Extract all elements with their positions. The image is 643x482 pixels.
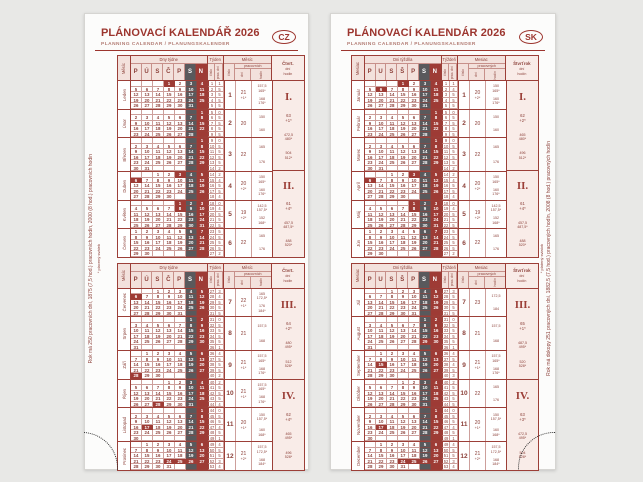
day-cell: 29 <box>376 373 387 379</box>
quarter-hours-value: 512* <box>519 156 526 160</box>
hours-value: 165 <box>259 145 265 149</box>
country-badge-cz: CZ <box>272 30 296 44</box>
day-cell: 30 <box>409 402 420 408</box>
week-number: 31 <box>208 311 216 317</box>
month-row: Březen1902345678105910111213141511516171… <box>118 138 272 172</box>
day-cell <box>398 251 409 257</box>
day-cell <box>398 373 409 379</box>
vertical-label: Apríl <box>356 182 361 191</box>
hours-value: 157,5* <box>257 417 267 421</box>
quarter-workdays-star: +4* <box>285 206 291 211</box>
day-cell <box>420 345 431 351</box>
days-sublabel: dní <box>235 69 251 80</box>
month-row: Október123440256789101141512131415161718… <box>352 380 506 409</box>
vertical-label: hodín <box>493 71 497 80</box>
week-number: 27 <box>442 251 450 257</box>
day-letter: Ú <box>142 64 153 80</box>
quarters-column: III.64+2*480495*512528*IV.62+4*465495*49… <box>272 289 304 470</box>
day-cell <box>409 464 420 470</box>
hours-pair: 142,5157,5* <box>491 204 501 213</box>
day-cell <box>376 436 387 442</box>
quarter-numeral: IV. <box>516 390 530 402</box>
day-letter: S <box>386 272 397 288</box>
day-cell: 31 <box>142 166 153 172</box>
week-row: 28293031534 <box>131 464 224 470</box>
day-cell <box>186 251 197 257</box>
weeks-grid: 1234563647891011121337514151617181920385… <box>131 351 224 379</box>
month-hours: 157,5172,5*168184* <box>252 442 272 470</box>
day-cell: 29 <box>387 194 398 200</box>
month-workdays-value: 22 <box>475 152 481 158</box>
vertical-label: Október <box>356 386 361 401</box>
day-cell <box>197 166 208 172</box>
day-letter: S <box>419 64 430 80</box>
hours-value: 150 <box>259 115 265 119</box>
hours-value: 168* <box>258 221 265 225</box>
month-name: Duben <box>118 172 131 200</box>
day-cell <box>431 311 442 317</box>
month-workdays: 21+1* <box>236 380 252 408</box>
month-number-sublabel: číslo <box>224 272 235 288</box>
quarter-column-header: Čtvrt.dníhodin <box>272 56 304 80</box>
weeks-grid: 1902345678105910111213141511516171819202… <box>365 138 458 171</box>
day-cell: 29 <box>131 251 142 257</box>
day-cell <box>398 166 409 172</box>
hours-pair: 150 <box>493 115 499 119</box>
day-cell <box>197 402 208 408</box>
week-sublabel: prac. dní <box>449 64 457 80</box>
vertical-label: December <box>356 446 361 466</box>
month-workdays-star: +2* <box>475 457 481 461</box>
hours-pair: 160168* <box>492 428 499 437</box>
perforation-arc <box>518 432 556 470</box>
quarter-numeral: II. <box>283 180 294 192</box>
hours-pair: 168 <box>259 339 265 343</box>
month-row: Červenec12345273678910111228413141516171… <box>118 289 272 318</box>
day-letter: S <box>419 272 430 288</box>
month-hours: 150165*160176* <box>486 81 506 109</box>
hours-pair: 157,5165* <box>492 354 501 363</box>
page-subtitle: PLANNING CALENDAR / PLANUNGSKALENDER <box>347 42 506 47</box>
week-number: 27 <box>208 251 216 257</box>
quarter-cell: IV.62+4*465495*496528* <box>273 380 304 470</box>
quarter-label-text: Čtvrt. <box>282 61 293 66</box>
hours-pair: 160176* <box>258 188 265 197</box>
day-cell <box>164 166 175 172</box>
week-row: 2930272 <box>365 251 458 257</box>
week-workdays: 1 <box>216 436 224 442</box>
quarter-hours-value: 480* <box>519 137 526 141</box>
day-cell: 27 <box>131 311 142 317</box>
week-workdays: 2 <box>216 251 224 257</box>
quarter-hours: 512528* <box>285 360 292 369</box>
quarter-hours-value: 520* <box>519 243 526 247</box>
month-hours: 157,5168 <box>252 317 272 350</box>
page-title: PLÁNOVACÍ KALENDÁR 2026 <box>347 28 506 40</box>
weeks-grid: 1231034567893251011121314151633517181920… <box>131 317 224 350</box>
month-name: Srpen <box>118 317 131 350</box>
days-sublabel: dní <box>469 277 485 288</box>
quarters-column: I.63+1*472,5480*504512*II.61+4*457,5487,… <box>272 81 304 257</box>
month-hours: 157,5165*168176* <box>252 380 272 408</box>
working-sublabels: pracovnýchdníhodín <box>469 64 505 80</box>
week-row: 2930272 <box>131 251 224 257</box>
hours-value: 165 <box>493 145 499 149</box>
quarter-hours-value: 495* <box>518 345 527 349</box>
day-cell: 29 <box>164 402 175 408</box>
months-column: Január1234115678910112412131415161718351… <box>352 81 506 257</box>
month-number: 1 <box>458 81 470 109</box>
day-cell: 26 <box>131 402 142 408</box>
hours-value: 176* <box>492 192 499 196</box>
day-cell <box>387 251 398 257</box>
day-cell: 31 <box>175 311 186 317</box>
week-row: 23242526272895 <box>365 132 458 138</box>
quarter-hours: 472,5480* <box>284 133 293 142</box>
months-column: Červenec12345273678910111228413141516171… <box>118 289 272 470</box>
day-cell: 31 <box>186 103 197 109</box>
hours-pair: 176 <box>493 398 499 402</box>
hours-value: 176 <box>259 247 265 251</box>
day-cell: 23 <box>131 132 142 138</box>
vertical-label: prac. dní <box>216 273 220 286</box>
day-cell <box>431 464 442 470</box>
title-block: PLÁNOVACÍ KALENDÁR 2026 PLANNING CALENDA… <box>347 28 506 47</box>
quarter-hours: 496512* <box>519 151 526 160</box>
hours-pair: 165 <box>259 234 265 238</box>
day-cell <box>175 373 186 379</box>
vertical-label: Květen <box>122 208 127 221</box>
hours-sublabel: hodín <box>485 277 505 288</box>
week-number: 53 <box>442 464 450 470</box>
week-number: 18 <box>208 194 216 200</box>
hours-sublabel: hodin <box>251 69 271 80</box>
month-row: Marec19023456781059101112131415115161718… <box>352 138 506 172</box>
page-header: PLÁNOVACÍ KALENDÁŘ 2026 PLANNING CALENDA… <box>85 14 308 47</box>
hours-value: 176* <box>258 371 265 375</box>
month-hours: 165176 <box>486 380 506 408</box>
vertical-label: hodin <box>259 71 263 79</box>
day-cell: 31 <box>197 223 208 229</box>
weeks-grid: 1234567235891011121314245151617181920212… <box>365 229 458 257</box>
month-number: 4 <box>458 172 470 200</box>
month-workdays: 22 <box>236 138 252 171</box>
vertical-label: Duben <box>122 180 127 193</box>
hours-pair: 160176* <box>492 188 499 197</box>
quarter-workdays: 64+2* <box>285 321 291 331</box>
week-row: 23242526272895 <box>131 132 224 138</box>
weeks-grid: 1234564947891011121350514151617181920515… <box>131 442 224 470</box>
month-workdays: 19+2* <box>470 201 486 229</box>
day-cell: 27 <box>365 311 376 317</box>
corner-perforation-clip <box>510 424 556 470</box>
month-number: 9 <box>458 351 470 379</box>
month-hours: 150157,5*160168* <box>252 408 272 441</box>
week-row: 2728293031315 <box>131 311 224 317</box>
month-row: Jún1234567235891011121314245151617181920… <box>352 229 506 257</box>
day-cell: 28 <box>142 311 153 317</box>
day-cell <box>186 345 197 351</box>
vertical-label: August <box>356 327 361 340</box>
hours-value: 184* <box>492 462 499 466</box>
month-hours: 157,5165*168176* <box>252 351 272 379</box>
month-summary-sublabels: číslopracovnýchdníhodín <box>458 272 505 288</box>
vertical-label: dní <box>240 72 244 77</box>
day-cell <box>197 103 208 109</box>
day-letter: P <box>174 272 185 288</box>
hours-pair: 152168* <box>492 216 499 225</box>
day-cell: 29 <box>409 223 420 229</box>
day-letter: P <box>131 272 142 288</box>
day-letter: P <box>131 64 142 80</box>
day-letter: Č <box>163 64 174 80</box>
day-cell: 30 <box>365 436 376 442</box>
quarter-hours: 488520* <box>519 239 526 248</box>
weeks-grid: 1234527367891011122851314151617181929520… <box>365 289 458 317</box>
vertical-label: číslo <box>209 69 213 76</box>
day-letter: N <box>196 64 207 80</box>
day-cell: 30 <box>387 373 398 379</box>
hours-value: 160 <box>492 428 499 432</box>
vertical-label: číslo <box>209 276 213 283</box>
hours-pair: 157,5172,5* <box>257 445 267 454</box>
quarter-cell: III.64+2*480495*512528* <box>273 289 304 380</box>
hours-value: 176 <box>259 160 265 164</box>
month-workdays: 20 <box>236 110 252 138</box>
vertical-label: Júl <box>356 300 361 306</box>
hours-value: 165* <box>492 180 499 184</box>
month-summary-label: Mesiac <box>458 264 505 272</box>
quarter-hours: 487,5495* <box>518 341 527 350</box>
month-column-label: Mesiac <box>355 269 360 282</box>
hours-value: 172,5* <box>257 450 267 454</box>
day-cell: 25 <box>131 223 142 229</box>
vertical-label: Február <box>356 116 361 131</box>
quarter-column-header: Štvrťrokdníhodín <box>506 264 538 288</box>
month-summary-header-group: Mesiacčíslopracovnýchdníhodín <box>458 264 506 288</box>
corner-perforation-clip <box>84 424 130 470</box>
month-row: Květen1231804567891019411121314151617205… <box>118 201 272 230</box>
weeks-grid: 1234514267891011121541314151617181916520… <box>131 172 224 200</box>
week-sublabels: čísloprac. dní <box>442 64 457 80</box>
month-workdays-value: 22 <box>241 152 247 158</box>
quarter-workdays-star: +2* <box>285 326 291 331</box>
month-workdays: 22 <box>470 380 486 408</box>
working-subrow: dníhodín <box>469 277 505 288</box>
quarter-workdays-star: +3* <box>519 417 525 422</box>
quarter-hours-value: 495* <box>285 345 292 349</box>
working-subrow: dníhodín <box>469 69 505 80</box>
day-cell <box>142 345 153 351</box>
month-row: Duben12345142678910111215413141516171819… <box>118 172 272 201</box>
quarter-hours-sublabel: hodin <box>283 279 292 283</box>
week-sublabel: číslo <box>442 272 450 288</box>
month-workdays: 23 <box>470 289 486 317</box>
week-number: 40 <box>208 373 216 379</box>
day-letter: Š <box>397 272 408 288</box>
weeks-grid: 1234402567891011415121314151617184251920… <box>365 380 458 408</box>
hours-value: 168 <box>259 339 265 343</box>
page-content: * platený sviatok Rok má dokopy 251 prac… <box>331 54 555 462</box>
month-number: 11 <box>458 408 470 441</box>
day-letters-row: PÚSČPSN <box>131 272 207 288</box>
week-header-group: Týždeňčísloprac. dní <box>442 56 458 80</box>
day-cell <box>186 436 197 442</box>
month-number: 12 <box>458 442 470 470</box>
calendar-body: Leden12341156789101125121314151617183519… <box>118 81 304 257</box>
day-cell: 31 <box>164 464 175 470</box>
day-cell <box>164 373 175 379</box>
month-hours: 165176 <box>486 138 506 171</box>
vertical-label: číslo <box>227 276 231 283</box>
week-workdays: 3 <box>450 373 458 379</box>
quarter-label-text: Štvrťrok <box>513 61 530 66</box>
month-hours: 142,5157,5*152168* <box>486 201 506 229</box>
month-row: Listopad14402345678455910111213141546516… <box>118 408 272 442</box>
month-summary-sublabels: číslopracovnýchdníhodín <box>458 64 505 80</box>
quarter-days-sublabel: dní <box>285 274 290 278</box>
day-cell: 31 <box>376 166 387 172</box>
hours-value: 176 <box>493 247 499 251</box>
vertical-label: číslo <box>227 69 231 76</box>
calendar-header: MěsícDny týdnePÚSČPSNTýdenčísloprac. dní… <box>118 264 304 289</box>
month-number-sublabel: číslo <box>458 64 469 80</box>
month-workdays-star: +1* <box>475 366 481 370</box>
day-letter: N <box>430 272 441 288</box>
day-cell: 31 <box>186 402 197 408</box>
month-column-label: Mesiac <box>355 62 360 75</box>
week-number: 5 <box>208 103 216 109</box>
day-cell <box>164 345 175 351</box>
week-header-group: Týdenčísloprac. dní <box>208 264 224 288</box>
day-cell: 26 <box>164 132 175 138</box>
week-row: 26272829303155 <box>131 103 224 109</box>
vertical-label: Září <box>122 361 127 369</box>
working-sublabels: pracovníchdníhodin <box>235 64 271 80</box>
month-workdays: 21+1* <box>470 351 486 379</box>
day-cell: 26 <box>398 132 409 138</box>
day-cell: 30 <box>376 251 387 257</box>
day-letter: Š <box>397 64 408 80</box>
day-letter: Č <box>163 272 174 288</box>
month-workdays-value: 23 <box>475 300 481 306</box>
week-workdays: 5 <box>450 223 458 229</box>
calendar-body: Červenec12345273678910111228413141516171… <box>118 289 304 470</box>
hours-value: 176* <box>258 101 265 105</box>
hours-value: 165 <box>493 385 499 389</box>
day-letter: U <box>376 272 387 288</box>
month-hours: 150165*160176* <box>252 172 272 200</box>
month-name: Červenec <box>118 289 131 317</box>
quarter-workdays: 62+2* <box>519 113 525 123</box>
vertical-label: Červen <box>122 236 127 250</box>
day-cell: 27 <box>142 103 153 109</box>
quarter-cell: II.61+4*457,5487,5*488520* <box>507 171 538 257</box>
quarter-days-sublabel: dní <box>519 67 524 71</box>
day-cell: 30 <box>186 223 197 229</box>
quarter-workdays: 63+3* <box>519 412 525 422</box>
week-row: 27282930184 <box>365 194 458 200</box>
week-sublabel: číslo <box>208 272 216 288</box>
weeks-grid: 1231804567891019411121314151617205181920… <box>131 201 224 229</box>
month-workdays: 22 <box>470 138 486 171</box>
calendar-page-cz: PLÁNOVACÍ KALENDÁŘ 2026 PLANNING CALENDA… <box>84 13 309 470</box>
week-workdays: 1 <box>450 436 458 442</box>
day-cell <box>175 345 186 351</box>
month-workdays: 21 <box>470 317 486 350</box>
month-workdays-star: +1* <box>241 395 247 399</box>
hours-value: 176* <box>492 371 499 375</box>
week-workdays: 4 <box>216 194 224 200</box>
day-cell <box>409 166 420 172</box>
vertical-label: číslo <box>443 69 447 76</box>
day-cell <box>420 251 431 257</box>
day-cell: 25 <box>387 132 398 138</box>
week-row: 30491 <box>131 436 224 442</box>
day-cell: 28 <box>376 311 387 317</box>
month-row: Február150234567865910111213141575161718… <box>352 110 506 139</box>
month-workdays-star: +1* <box>475 426 481 430</box>
month-hours: 150157,5*160168* <box>486 408 506 441</box>
week-number: 49 <box>442 436 450 442</box>
day-cell: 30 <box>365 166 376 172</box>
day-cell <box>409 251 420 257</box>
month-hours: 150160 <box>252 110 272 138</box>
month-workdays: 22 <box>236 229 252 257</box>
week-row: 282930403 <box>365 373 458 379</box>
month-row: September1234563647891011121337514151617… <box>352 351 506 380</box>
day-cell: 29 <box>387 311 398 317</box>
month-name: Březen <box>118 138 131 171</box>
month-row: Prosinec12345649478910111213505141516171… <box>118 442 272 470</box>
quarter-label-text: Čtvrt. <box>282 268 293 273</box>
week-workdays: 2 <box>450 251 458 257</box>
hours-pair: 152168* <box>258 216 265 225</box>
quarter-workdays: 63+1* <box>285 113 291 123</box>
week-number: 5 <box>442 103 450 109</box>
week-sublabel: číslo <box>208 64 216 80</box>
days-sublabel: dní <box>469 69 485 80</box>
days-of-week-label: Dny týdne <box>131 56 207 64</box>
day-cell: 23 <box>365 132 376 138</box>
day-cell: 26 <box>131 103 142 109</box>
day-cell <box>431 373 442 379</box>
header-rule <box>95 50 298 52</box>
month-name: Září <box>118 351 131 379</box>
day-cell <box>197 373 208 379</box>
month-workdays-star: +2* <box>475 187 481 191</box>
hours-value: 157,5 <box>258 324 267 328</box>
month-workdays: 20+2* <box>470 172 486 200</box>
hours-pair: 165 <box>493 234 499 238</box>
quarters-column: I.62+2*465480*496512*II.61+4*457,5487,5*… <box>506 81 538 257</box>
month-summary-sublabels: číslopracovníchdníhodin <box>224 64 271 80</box>
quarter-workdays: 65+1* <box>519 321 525 331</box>
day-cell <box>431 402 442 408</box>
day-cell <box>431 345 442 351</box>
week-label: Týden <box>208 264 223 272</box>
month-name: Říjen <box>118 380 131 408</box>
month-row: Júl1234527367891011122851314151617181929… <box>352 289 506 318</box>
day-letter: P <box>365 64 376 80</box>
week-number: 36 <box>442 345 450 351</box>
month-summary-label: Měsíc <box>224 56 271 64</box>
vertical-label: dní <box>240 280 244 285</box>
header-rule <box>341 50 545 52</box>
month-summary-header-group: Měsícčíslopracovníchdníhodin <box>224 56 272 80</box>
day-cell: 31 <box>131 345 142 351</box>
hours-pair: 157,5165* <box>258 84 267 93</box>
